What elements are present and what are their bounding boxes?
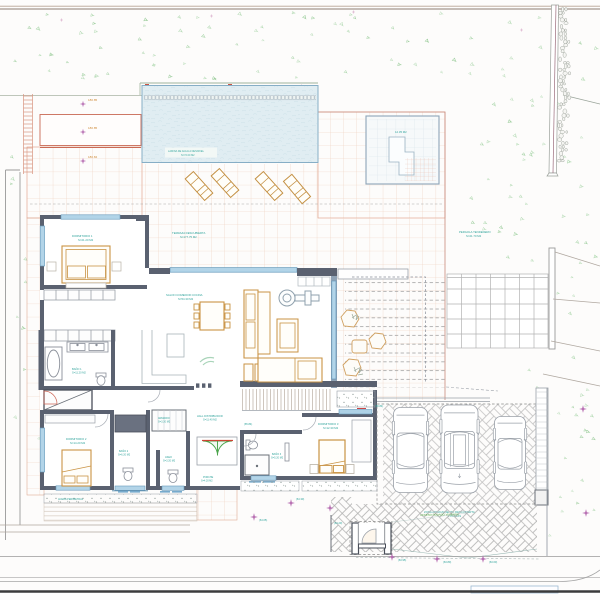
svg-text:180.85: 180.85: [88, 126, 98, 130]
svg-text:S=3.20 M2: S=3.20 M2: [158, 421, 171, 424]
svg-text:S=177.75 M2: S=177.75 M2: [180, 235, 197, 239]
svg-text:S=11.40 M2: S=11.40 M2: [203, 418, 217, 422]
svg-text:(65.84): (65.84): [375, 404, 383, 408]
svg-text:S=12.30 M2: S=12.30 M2: [323, 426, 339, 430]
svg-text:(64.30): (64.30): [296, 497, 304, 501]
svg-text:(64.05): (64.05): [259, 518, 267, 522]
svg-text:LAMINA DE AGUA A DESNIVEL: LAMINA DE AGUA A DESNIVEL: [168, 150, 205, 153]
svg-text:180.84: 180.84: [88, 155, 98, 159]
svg-text:S=54.30 M2: S=54.30 M2: [178, 297, 194, 301]
svg-text:S=6.20 M2: S=6.20 M2: [118, 454, 131, 457]
svg-text:12.35 M2: 12.35 M2: [395, 130, 407, 134]
svg-text:S=4.20 M2: S=4.20 M2: [201, 480, 213, 483]
svg-text:(63.60): (63.60): [489, 560, 497, 564]
svg-text:S=21.20 M2: S=21.20 M2: [78, 238, 94, 242]
svg-text:(63.95): (63.95): [398, 558, 406, 562]
svg-text:(65.84): (65.84): [244, 422, 252, 426]
svg-text:(63.80): (63.80): [443, 560, 451, 564]
svg-text:(64.20): (64.20): [334, 521, 342, 525]
svg-text:S=11.20 M2: S=11.20 M2: [72, 371, 86, 375]
svg-text:S=5.20 M2: S=5.20 M2: [271, 457, 284, 460]
svg-text:HALL DISTRIBUIDOR: HALL DISTRIBUIDOR: [197, 414, 223, 418]
svg-text:ACERA PERIMETRAL: ACERA PERIMETRAL: [58, 498, 84, 501]
svg-text:ACCESO RODADO VIVIENDA: ACCESO RODADO VIVIENDA: [420, 512, 459, 517]
svg-text:S=3.20 M2: S=3.20 M2: [163, 460, 176, 463]
svg-text:S=72.00 M2: S=72.00 M2: [181, 154, 195, 157]
svg-text:S=14.20 M2: S=14.20 M2: [70, 441, 86, 445]
svg-text:S=21.70 M2: S=21.70 M2: [466, 234, 482, 238]
svg-text:180.85: 180.85: [88, 98, 98, 102]
